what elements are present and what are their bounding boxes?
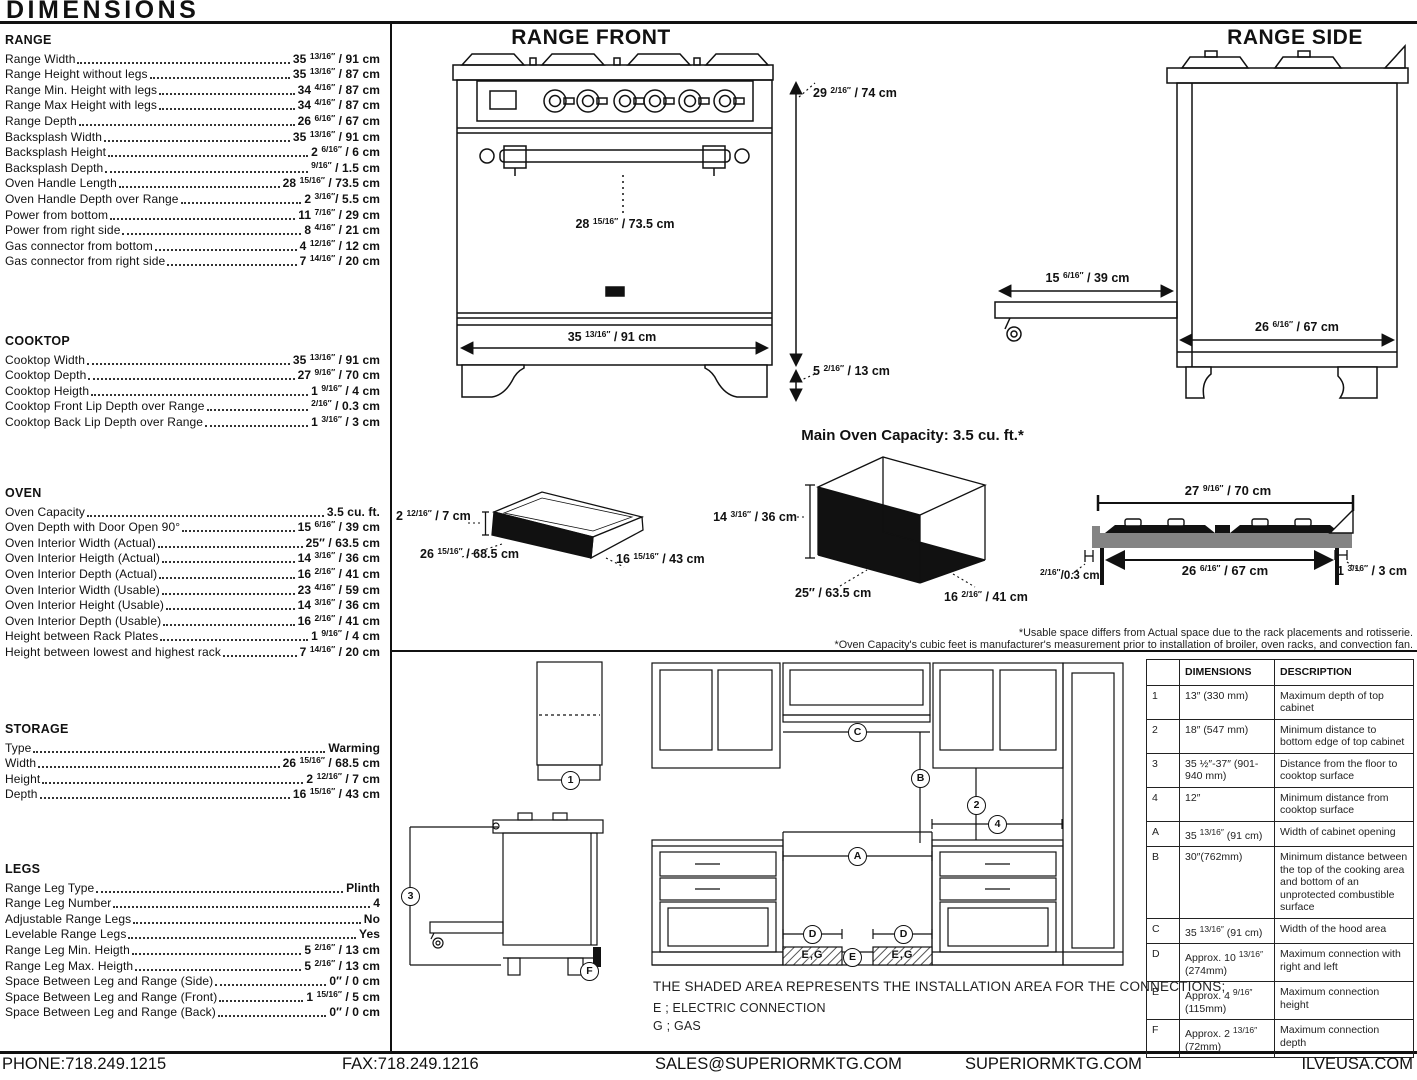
floor-to-cooktop-measure — [410, 827, 501, 965]
spec-value: 34 4/16″ / 87 cm — [298, 97, 380, 112]
dotted-leader — [159, 108, 295, 110]
vertical-divider — [390, 22, 392, 1052]
spec-row: Backsplash Depth 9/16″ / 1.5 cm — [5, 159, 380, 175]
spec-label: Gas connector from bottom — [5, 239, 153, 253]
row-dimension: 12″ — [1180, 787, 1275, 821]
cooktop-top-width-dim: 27 9/16″ / 70 cm — [1153, 483, 1303, 498]
cooktop-back-lip-dim: 1 3/16″ / 3 cm — [1337, 563, 1407, 578]
callout-b: B — [911, 769, 930, 788]
callout-d-right: D — [894, 925, 913, 944]
backsplash-profile — [1385, 46, 1405, 68]
callout-a: A — [848, 847, 867, 866]
row-id: 1 — [1147, 685, 1180, 719]
spec-value: 23 4/16″ / 59 cm — [298, 582, 380, 597]
row-dimension: Approx. 10 13/16″ (274mm) — [1180, 944, 1275, 982]
spec-label: Range Depth — [5, 114, 77, 128]
dotted-leader — [182, 530, 294, 532]
side-front-leg — [1186, 367, 1211, 398]
row-description: Maximum connection with right and left — [1275, 944, 1414, 982]
spec-row: Oven Interior Depth (Actual) 16 2/16″ / … — [5, 565, 380, 581]
dotted-leader — [167, 264, 296, 266]
spec-value: 35 13/16″ / 87 cm — [293, 66, 380, 81]
cooktop-burner-width-dim: 26 6/16″ / 67 cm — [1150, 563, 1300, 578]
dotted-leader — [207, 409, 309, 411]
side-depth-dim: 26 6/16″ / 67 cm — [1227, 319, 1367, 334]
door-caster — [1007, 327, 1021, 341]
spec-label: Range Leg Max. Heigth — [5, 959, 133, 973]
spec-label: Oven Depth with Door Open 90° — [5, 520, 180, 534]
spec-value: 35 13/16″ / 91 cm — [293, 352, 380, 367]
spec-row: Oven Interior Height (Usable) 14 3/16″ /… — [5, 597, 380, 613]
header-description: DESCRIPTION — [1275, 660, 1414, 686]
oven-capacity-drawing — [795, 450, 1040, 600]
table-row: F Approx. 2 13/16″ (72mm) Maximum connec… — [1147, 1020, 1414, 1058]
front-height-dim: 29 2/16″ / 74 cm — [813, 85, 897, 100]
spec-label: Oven Interior Depth (Usable) — [5, 614, 161, 628]
spec-row: Range Leg Number 4 — [5, 895, 380, 911]
dotted-leader — [150, 77, 290, 79]
spec-label: Backsplash Width — [5, 130, 102, 144]
dotted-leader — [158, 546, 303, 548]
spec-row: Oven Handle Length 28 15/16″ / 73.5 cm — [5, 175, 380, 191]
spec-label: Oven Interior Depth (Actual) — [5, 567, 157, 581]
header-dimensions: DIMENSIONS — [1180, 660, 1275, 686]
header-id — [1147, 660, 1180, 686]
drawer-height-dim: 2 12/16″ / 7 cm — [396, 508, 471, 523]
dotted-leader — [181, 202, 302, 204]
dotted-leader — [104, 140, 290, 142]
title-underline — [0, 21, 1417, 24]
spec-row: Backsplash Width 35 13/16″ / 91 cm — [5, 128, 380, 144]
row-dimension: 35 ½″-37″ (901-940 mm) — [1180, 753, 1275, 787]
spec-label: Oven Interior Width (Actual) — [5, 536, 156, 550]
dotted-leader — [155, 249, 297, 251]
dotted-leader — [122, 233, 301, 235]
spec-value: 8 4/16″ / 21 cm — [304, 222, 380, 237]
table-body: 1 13″ (330 mm) Maximum depth of top cabi… — [1147, 685, 1414, 1058]
row-dimension: Approx. 2 13/16″ (72mm) — [1180, 1020, 1275, 1058]
spec-row: Cooktop Depth 27 9/16″ / 70 cm — [5, 367, 380, 383]
table-row: B 30″(762mm) Minimum distance between th… — [1147, 847, 1414, 919]
dotted-leader — [77, 62, 289, 64]
dotted-leader — [133, 922, 361, 924]
spec-label: Depth — [5, 787, 38, 801]
spec-row: Height between Rack Plates 1 9/16″ / 4 c… — [5, 628, 380, 644]
table-row: E Approx. 4 9/16″ (115mm) Maximum connec… — [1147, 982, 1414, 1020]
installation-front-view — [650, 658, 1130, 970]
spec-value: 9/16″ / 1.5 cm — [311, 160, 380, 175]
dotted-leader — [38, 766, 279, 768]
spec-label: Height between lowest and highest rack — [5, 645, 221, 659]
electric-legend: E ; ELECTRIC CONNECTION — [653, 1001, 826, 1015]
eg-area-label-right: E,G — [873, 949, 932, 961]
eg-area-label-left: E,G — [783, 949, 842, 961]
spec-value: 5 2/16″ / 13 cm — [304, 942, 380, 957]
gas-legend: G ; GAS — [653, 1019, 701, 1033]
spec-label: Cooktop Front Lip Depth over Range — [5, 399, 205, 413]
row-description: Maximum connection depth — [1275, 1020, 1414, 1058]
spec-label: Oven Interior Width (Usable) — [5, 583, 160, 597]
spec-label: Cooktop Depth — [5, 368, 86, 382]
range-spec-section: RANGE Range Width 35 13/16″ / 91 cm Rang… — [5, 33, 380, 268]
hood-cabinet — [783, 663, 930, 715]
dotted-leader — [162, 561, 295, 563]
spec-value: 28 15/16″ / 73.5 cm — [283, 175, 380, 190]
storage-section-title: STORAGE — [5, 722, 380, 736]
dotted-leader — [166, 608, 295, 610]
cooktop-spec-section: COOKTOP Cooktop Width 35 13/16″ / 91 cm … — [5, 334, 380, 429]
row-id: F — [1147, 1020, 1180, 1058]
row-description: Minimum distance to bottom edge of top c… — [1275, 719, 1414, 753]
spec-value: 2/16″ / 0.3 cm — [311, 398, 380, 413]
spec-row: Adjustable Range Legs No — [5, 910, 380, 926]
dotted-leader — [160, 639, 308, 641]
spec-label: Space Between Leg and Range (Back) — [5, 1005, 216, 1019]
table-row: D Approx. 10 13/16″ (274mm) Maximum conn… — [1147, 944, 1414, 982]
side-door-dim: 15 6/16″ / 39 cm — [1020, 270, 1155, 285]
row-id: B — [1147, 847, 1180, 919]
callout-1: 1 — [561, 771, 580, 790]
dotted-leader — [159, 577, 294, 579]
spec-value: 27 9/16″ / 70 cm — [298, 367, 380, 382]
spec-value: 34 4/16″ / 87 cm — [298, 82, 380, 97]
row-dimension: 35 13/16″ (91 cm) — [1180, 918, 1275, 944]
spec-value: Yes — [359, 927, 380, 941]
dotted-leader — [105, 171, 308, 173]
spec-row: Depth 16 15/16″ / 43 cm — [5, 786, 380, 802]
spec-row: Range Leg Type Plinth — [5, 879, 380, 895]
dotted-leader — [108, 155, 308, 157]
spec-row: Space Between Leg and Range (Back) 0″ / … — [5, 1004, 380, 1020]
spec-row: Range Width 35 13/16″ / 91 cm — [5, 50, 380, 66]
spec-row: Oven Handle Depth over Range 2 3/16″/ 5.… — [5, 190, 380, 206]
row-id: 4 — [1147, 787, 1180, 821]
footer-fax: FAX:718.249.1216 — [342, 1055, 479, 1074]
spec-label: Space Between Leg and Range (Side) — [5, 974, 213, 988]
row-description: Width of cabinet opening — [1275, 821, 1414, 847]
spec-row: Height 2 12/16″ / 7 cm — [5, 770, 380, 786]
spec-label: Cooktop Width — [5, 353, 85, 367]
spec-label: Height — [5, 772, 40, 786]
spec-row: Oven Interior Depth (Usable) 16 2/16″ / … — [5, 612, 380, 628]
table-header-row: DIMENSIONS DESCRIPTION — [1147, 660, 1414, 686]
spec-row: Oven Interior Width (Actual) 25″ / 63.5 … — [5, 534, 380, 550]
dotted-leader — [205, 425, 308, 427]
oven-handle — [480, 146, 749, 176]
spec-label: Range Width — [5, 52, 75, 66]
spec-row: Cooktop Heigth 1 9/16″ / 4 cm — [5, 382, 380, 398]
oven-height-measure — [797, 485, 815, 558]
spec-row: Range Height without legs 35 13/16″ / 87… — [5, 66, 380, 82]
oven-width-dim: 25″ / 63.5 cm — [795, 586, 871, 600]
spec-label: Type — [5, 741, 31, 755]
spec-value: Warming — [328, 741, 380, 755]
spec-value: 0″ / 0 cm — [329, 974, 380, 988]
row-description: Minimum distance between the top of the … — [1275, 847, 1414, 919]
spec-row: Range Min. Height with legs 34 4/16″ / 8… — [5, 81, 380, 97]
spec-value: 7 14/16″ / 20 cm — [300, 253, 380, 268]
spec-label: Range Leg Number — [5, 896, 111, 910]
cooktop-spec-list: Cooktop Width 35 13/16″ / 91 cm Cooktop … — [5, 351, 380, 429]
dotted-leader — [163, 624, 294, 626]
spec-value: 1 9/16″ / 4 cm — [311, 383, 380, 398]
spec-label: Oven Interior Height (Usable) — [5, 598, 164, 612]
spec-value: 14 3/16″ / 36 cm — [298, 550, 380, 565]
row-description: Maximum connection height — [1275, 982, 1414, 1020]
top-cabinet — [537, 662, 602, 765]
table-row: C 35 13/16″ (91 cm) Width of the hood ar… — [1147, 918, 1414, 944]
cooktop-front-lip-dim: 2/16″/0.3 cm — [1040, 567, 1100, 582]
spec-label: Backsplash Depth — [5, 161, 103, 175]
spec-row: Range Depth 26 6/16″ / 67 cm — [5, 112, 380, 128]
row-id: A — [1147, 821, 1180, 847]
callout-e: E — [843, 948, 862, 967]
spec-value: 5 2/16″ / 13 cm — [304, 958, 380, 973]
callout-2: 2 — [967, 796, 986, 815]
dotted-leader — [223, 655, 297, 657]
spec-row: Oven Capacity 3.5 cu. ft. — [5, 503, 380, 519]
range-section-title: RANGE — [5, 33, 380, 47]
spec-row: Levelable Range Legs Yes — [5, 926, 380, 942]
shaded-area-note: THE SHADED AREA REPRESENTS THE INSTALLAT… — [653, 979, 1225, 994]
spec-row: Gas connector from right side 7 14/16″ /… — [5, 253, 380, 269]
footer-phone: PHONE:718.249.1215 — [2, 1055, 166, 1074]
row-id: E — [1147, 982, 1180, 1020]
table-row: A 35 13/16″ (91 cm) Width of cabinet ope… — [1147, 821, 1414, 847]
spec-row: Type Warming — [5, 739, 380, 755]
row-dimension: 13″ (330 mm) — [1180, 685, 1275, 719]
front-handle-dim: 28 15/16″ / 73.5 cm — [520, 216, 730, 231]
spec-value: 2 12/16″ / 7 cm — [306, 771, 380, 786]
side-back-leg — [1338, 367, 1377, 398]
spec-label: Oven Capacity — [5, 505, 85, 519]
spec-value: 1 3/16″ / 3 cm — [311, 414, 380, 429]
row-dimension: 30″(762mm) — [1180, 847, 1275, 919]
spec-value: 0″ / 0 cm — [329, 1005, 380, 1019]
open-door-shelf — [995, 302, 1177, 318]
spec-label: Backsplash Height — [5, 145, 106, 159]
brand-badge — [606, 287, 624, 296]
row-dimension: 18″ (547 mm) — [1180, 719, 1275, 753]
spec-value: 16 2/16″ / 41 cm — [298, 613, 380, 628]
open-door-side — [430, 922, 503, 933]
dotted-leader — [218, 1015, 326, 1017]
spec-row: Gas connector from bottom 4 12/16″ / 12 … — [5, 237, 380, 253]
spec-label: Width — [5, 756, 36, 770]
front-right-leg — [705, 365, 767, 397]
spec-label: Range Max Height with legs — [5, 98, 157, 112]
control-display — [490, 91, 516, 109]
spec-value: 15 6/16″ / 39 cm — [298, 519, 380, 534]
footer-email: SALES@SUPERIORMKTG.COM — [655, 1055, 902, 1074]
front-left-leg — [462, 365, 524, 397]
front-width-dim: 35 13/16″ / 91 cm — [512, 329, 712, 344]
drawer-depth-dim: 16 15/16″ / 43 cm — [616, 551, 705, 566]
cooktop-section-title: COOKTOP — [5, 334, 380, 348]
legs-spec-section: LEGS Range Leg Type Plinth Range Leg Num… — [5, 862, 380, 1019]
spec-value: 2 6/16″ / 6 cm — [311, 144, 380, 159]
spec-value: 16 15/16″ / 43 cm — [293, 786, 380, 801]
dotted-leader — [33, 751, 325, 753]
row-description: Distance from the floor to cooktop surfa… — [1275, 753, 1414, 787]
spec-label: Height between Rack Plates — [5, 629, 158, 643]
dotted-leader — [79, 124, 295, 126]
spec-value: 25″ / 63.5 cm — [306, 536, 380, 550]
storage-spec-list: Type Warming Width 26 15/16″ / 68.5 cm H… — [5, 739, 380, 801]
spec-value: 4 — [373, 896, 380, 910]
row-id: C — [1147, 918, 1180, 944]
dotted-leader — [113, 906, 370, 908]
table-row: 2 18″ (547 mm) Minimum distance to botto… — [1147, 719, 1414, 753]
backsplash-wedge — [1330, 510, 1353, 533]
spec-label: Range Height without legs — [5, 67, 148, 81]
dotted-leader — [215, 984, 326, 986]
spec-label: Oven Handle Depth over Range — [5, 192, 179, 206]
spec-value: 11 7/16″ / 29 cm — [298, 207, 380, 222]
profile-left-leg — [1100, 548, 1104, 585]
spec-value: 16 2/16″ / 41 cm — [298, 566, 380, 581]
spec-label: Range Min. Height with legs — [5, 83, 157, 97]
spec-label: Space Between Leg and Range (Front) — [5, 990, 217, 1004]
spec-value: 26 6/16″ / 67 cm — [298, 113, 380, 128]
spec-label: Adjustable Range Legs — [5, 912, 131, 926]
spec-value: No — [364, 912, 380, 926]
dotted-leader — [219, 1000, 303, 1002]
oven-depth-dim: 16 2/16″ / 41 cm — [944, 589, 1028, 604]
spec-row: Oven Interior Heigth (Actual) 14 3/16″ /… — [5, 550, 380, 566]
spec-label: Cooktop Back Lip Depth over Range — [5, 415, 203, 429]
spec-row: Oven Depth with Door Open 90° 15 6/16″ /… — [5, 519, 380, 535]
spec-value: Plinth — [346, 881, 380, 895]
oven-section-title: OVEN — [5, 486, 380, 500]
row-description: Width of the hood area — [1275, 918, 1414, 944]
installation-side-view — [398, 658, 643, 998]
spec-value: 2 3/16″/ 5.5 cm — [304, 191, 380, 206]
dotted-leader — [87, 515, 324, 517]
row-id: D — [1147, 944, 1180, 982]
dotted-leader — [42, 782, 303, 784]
dotted-leader — [110, 218, 295, 220]
dotted-leader — [87, 363, 290, 365]
dotted-leader — [132, 953, 301, 955]
front-leg-dim: 5 2/16″ / 13 cm — [813, 363, 890, 378]
footer-website: SUPERIORMKTG.COM — [965, 1055, 1142, 1074]
spec-row: Cooktop Front Lip Depth over Range 2/16″… — [5, 398, 380, 414]
burner-knobs — [544, 90, 744, 112]
spec-label: Gas connector from right side — [5, 254, 165, 268]
range-side-drawing — [990, 40, 1417, 405]
spec-label: Range Leg Type — [5, 881, 94, 895]
spec-row: Oven Interior Width (Usable) 23 4/16″ / … — [5, 581, 380, 597]
legs-spec-list: Range Leg Type Plinth Range Leg Number 4… — [5, 879, 380, 1019]
dotted-leader — [162, 593, 295, 595]
spec-row: Width 26 15/16″ / 68.5 cm — [5, 755, 380, 771]
callout-d-left: D — [803, 925, 822, 944]
dotted-leader — [91, 394, 308, 396]
spec-row: Power from bottom 11 7/16″ / 29 cm — [5, 206, 380, 222]
table-row: 4 12″ Minimum distance from cooktop surf… — [1147, 787, 1414, 821]
spec-row: Cooktop Width 35 13/16″ / 91 cm — [5, 351, 380, 367]
callout-4: 4 — [988, 815, 1007, 834]
spec-label: Range Leg Min. Heigth — [5, 943, 130, 957]
dotted-leader — [135, 969, 301, 971]
oven-spec-section: OVEN Oven Capacity 3.5 cu. ft. Oven Dept… — [5, 486, 380, 659]
footer-brand-site: ILVEUSA.COM — [1301, 1055, 1413, 1074]
dimensions-spec-sheet: DIMENSIONS RANGE Range Width 35 13/16″ /… — [0, 0, 1417, 1080]
dotted-leader — [96, 891, 343, 893]
spec-row: Power from right side 8 4/16″ / 21 cm — [5, 222, 380, 238]
row-id: 2 — [1147, 719, 1180, 753]
storage-spec-section: STORAGE Type Warming Width 26 15/16″ / 6… — [5, 722, 380, 801]
oven-capacity-title: Main Oven Capacity: 3.5 cu. ft.* — [790, 427, 1035, 444]
upper-left-cabinet — [652, 663, 780, 768]
spec-value: 4 12/16″ / 12 cm — [300, 238, 380, 253]
spec-label: Cooktop Heigth — [5, 384, 89, 398]
spec-value: 14 3/16″ / 36 cm — [298, 597, 380, 612]
spec-row: Cooktop Back Lip Depth over Range 1 3/16… — [5, 413, 380, 429]
spec-value: 1 9/16″ / 4 cm — [311, 628, 380, 643]
dotted-leader — [88, 378, 294, 380]
row-dimension: 35 13/16″ (91 cm) — [1180, 821, 1275, 847]
spec-label: Power from right side — [5, 223, 120, 237]
row-description: Minimum distance from cooktop surface — [1275, 787, 1414, 821]
spec-row: Height between lowest and highest rack 7… — [5, 643, 380, 659]
range-side-body — [995, 46, 1408, 398]
oven-height-dim: 14 3/16″ / 36 cm — [697, 509, 797, 524]
oven-spec-list: Oven Capacity 3.5 cu. ft. Oven Depth wit… — [5, 503, 380, 659]
dotted-leader — [119, 186, 280, 188]
spec-label: Oven Interior Heigth (Actual) — [5, 551, 160, 565]
spec-label: Levelable Range Legs — [5, 927, 126, 941]
spec-label: Power from bottom — [5, 208, 108, 222]
connection-dimension-table: DIMENSIONS DESCRIPTION 1 13″ (330 mm) Ma… — [1146, 659, 1414, 1058]
storage-drawer-drawing — [410, 455, 700, 610]
spec-row: Space Between Leg and Range (Side) 0″ / … — [5, 973, 380, 989]
legs-section-title: LEGS — [5, 862, 380, 876]
upper-right-cabinet — [933, 663, 1063, 768]
dotted-leader — [40, 797, 290, 799]
spec-value: 26 15/16″ / 68.5 cm — [283, 755, 380, 770]
callout-3: 3 — [401, 887, 420, 906]
spec-row: Range Leg Max. Heigth 5 2/16″ / 13 cm — [5, 957, 380, 973]
spec-row: Range Leg Min. Heigth 5 2/16″ / 13 cm — [5, 941, 380, 957]
dotted-leader — [128, 937, 356, 939]
drawer-width-dim: 26 15/16″ / 68.5 cm — [420, 546, 519, 561]
dotted-leader — [159, 93, 294, 95]
oven-capacity-footnote: *Oven Capacity's cubic feet is manufactu… — [600, 639, 1413, 652]
range-spec-list: Range Width 35 13/16″ / 91 cm Range Heig… — [5, 50, 380, 268]
spec-row: Range Max Height with legs 34 4/16″ / 87… — [5, 97, 380, 113]
cooktop-slab — [1092, 533, 1352, 548]
table-row: 3 35 ½″-37″ (901-940 mm) Distance from t… — [1147, 753, 1414, 787]
spec-value: 1 15/16″ / 5 cm — [306, 989, 380, 1004]
spec-value: 7 14/16″ / 20 cm — [300, 644, 380, 659]
table-row: 1 13″ (330 mm) Maximum depth of top cabi… — [1147, 685, 1414, 719]
spec-value: 35 13/16″ / 91 cm — [293, 51, 380, 66]
usable-space-footnote: *Usable space differs from Actual space … — [600, 627, 1413, 640]
row-dimension: Approx. 4 9/16″ (115mm) — [1180, 982, 1275, 1020]
row-id: 3 — [1147, 753, 1180, 787]
callout-f: F — [580, 962, 599, 981]
spec-row: Backsplash Height 2 6/16″ / 6 cm — [5, 144, 380, 160]
callout-c: C — [848, 723, 867, 742]
row-description: Maximum depth of top cabinet — [1275, 685, 1414, 719]
spec-label: Oven Handle Length — [5, 176, 117, 190]
spec-row: Space Between Leg and Range (Front) 1 15… — [5, 988, 380, 1004]
spec-value: 35 13/16″ / 91 cm — [293, 129, 380, 144]
spec-value: 3.5 cu. ft. — [327, 505, 380, 519]
